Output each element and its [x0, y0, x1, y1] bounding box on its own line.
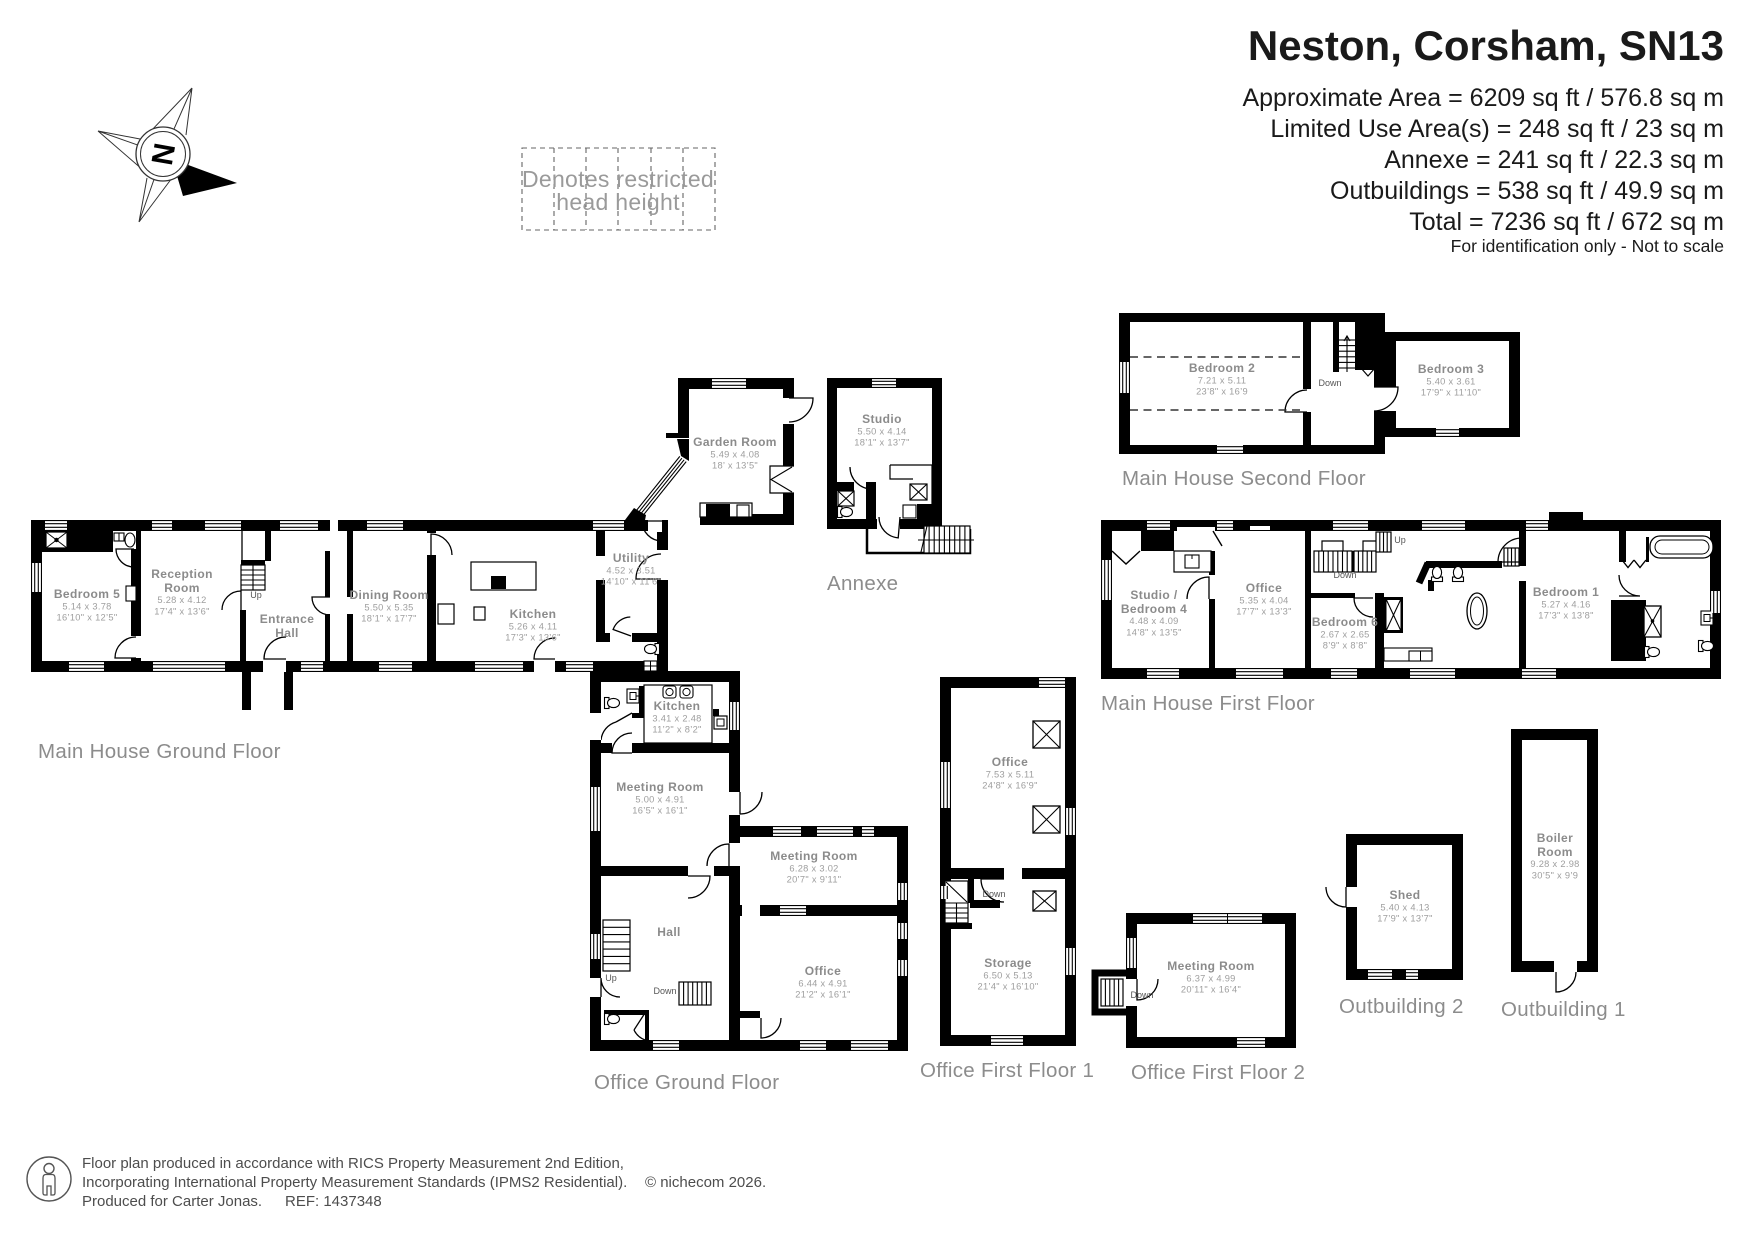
svg-text:Main House Ground Floor: Main House Ground Floor [38, 740, 281, 763]
svg-text:6.28 x 3.02: 6.28 x 3.02 [789, 863, 838, 873]
svg-text:Hall: Hall [657, 925, 681, 939]
svg-text:Studio /: Studio / [1130, 588, 1177, 602]
svg-text:Down: Down [1318, 378, 1341, 388]
svg-text:6.37 x 4.99: 6.37 x 4.99 [1186, 973, 1235, 983]
svg-text:Down: Down [653, 986, 676, 996]
svg-text:Reception: Reception [151, 567, 213, 581]
svg-text:18’ x 13’5": 18’ x 13’5" [712, 461, 758, 471]
svg-text:Room: Room [164, 581, 200, 595]
svg-text:17’4" x 13’6": 17’4" x 13’6" [154, 606, 209, 616]
svg-text:© nichecom 2026.: © nichecom 2026. [645, 1174, 766, 1191]
svg-text:Hall: Hall [275, 626, 299, 640]
svg-text:6.44 x 4.91: 6.44 x 4.91 [798, 978, 847, 988]
svg-text:Bedroom 5: Bedroom 5 [54, 587, 120, 601]
svg-text:7.53 x 5.11: 7.53 x 5.11 [986, 769, 1035, 779]
svg-text:Produced for Carter Jonas.: Produced for Carter Jonas. [82, 1193, 262, 1210]
svg-text:Outbuilding 1: Outbuilding 1 [1501, 998, 1626, 1021]
svg-text:Meeting Room: Meeting Room [616, 780, 703, 794]
svg-text:20’11" x 16’4": 20’11" x 16’4" [1181, 985, 1241, 995]
svg-text:5.00 x 4.91: 5.00 x 4.91 [635, 794, 684, 804]
svg-text:5.50 x 4.14: 5.50 x 4.14 [857, 426, 906, 436]
svg-text:Main House Second Floor: Main House Second Floor [1122, 467, 1366, 490]
svg-text:5.50 x 5.35: 5.50 x 5.35 [364, 602, 413, 612]
svg-text:5.26 x 4.11: 5.26 x 4.11 [509, 621, 558, 631]
svg-text:17’9" x 11’10": 17’9" x 11’10" [1421, 388, 1481, 398]
svg-text:18’1" x 13’7": 18’1" x 13’7" [854, 438, 909, 448]
svg-text:Annexe: Annexe [827, 572, 898, 595]
svg-text:Entrance: Entrance [260, 612, 315, 626]
svg-text:5.35 x 4.04: 5.35 x 4.04 [1239, 595, 1288, 605]
svg-text:Neston, Corsham, SN13: Neston, Corsham, SN13 [1248, 22, 1724, 69]
svg-text:21’4" x 16’10": 21’4" x 16’10" [978, 982, 1039, 992]
svg-text:16’5" x 16’1": 16’5" x 16’1" [632, 806, 687, 816]
svg-text:6.50 x 5.13: 6.50 x 5.13 [983, 970, 1032, 980]
svg-text:Outbuildings = 538 sq ft / 49.: Outbuildings = 538 sq ft / 49.9 sq m [1330, 177, 1724, 205]
svg-text:Bedroom 1: Bedroom 1 [1533, 585, 1599, 599]
svg-text:Storage: Storage [984, 956, 1031, 970]
svg-text:Meeting Room: Meeting Room [1167, 959, 1254, 973]
svg-text:Studio: Studio [862, 412, 902, 426]
svg-text:5.40 x 4.13: 5.40 x 4.13 [1380, 902, 1429, 912]
svg-text:5.28 x 4.12: 5.28 x 4.12 [157, 595, 206, 605]
svg-text:Office First Floor 1: Office First Floor 1 [920, 1059, 1094, 1082]
svg-text:Bedroom 4: Bedroom 4 [1121, 602, 1187, 616]
svg-text:9.28 x 2.98: 9.28 x 2.98 [1530, 859, 1579, 869]
svg-text:23’8" x 16’9: 23’8" x 16’9 [1196, 387, 1248, 397]
svg-text:5.27 x 4.16: 5.27 x 4.16 [1541, 599, 1590, 609]
svg-text:17’3" x 13’8": 17’3" x 13’8" [1538, 611, 1593, 621]
svg-text:Bedroom 2: Bedroom 2 [1189, 361, 1255, 375]
svg-text:3.41 x 2.48: 3.41 x 2.48 [652, 713, 701, 723]
svg-text:Limited Use Area(s) = 248 sq f: Limited Use Area(s) = 248 sq ft / 23 sq … [1270, 115, 1724, 143]
svg-text:Up: Up [605, 973, 617, 983]
svg-text:Garden Room: Garden Room [693, 435, 777, 449]
svg-text:18’1" x 17’7": 18’1" x 17’7" [361, 614, 416, 624]
svg-text:21’2" x 16’1": 21’2" x 16’1" [795, 990, 850, 1000]
svg-text:Outbuilding 2: Outbuilding 2 [1339, 995, 1464, 1018]
svg-text:Boiler: Boiler [1537, 831, 1573, 845]
svg-text:Kitchen: Kitchen [510, 607, 557, 621]
svg-text:5.49 x 4.08: 5.49 x 4.08 [710, 449, 759, 459]
svg-text:Incorporating International Pr: Incorporating International Property Mea… [82, 1174, 627, 1191]
svg-text:Up: Up [1394, 535, 1406, 545]
svg-text:5.14 x 3.78: 5.14 x 3.78 [62, 601, 111, 611]
svg-text:Up: Up [250, 590, 262, 600]
svg-text:Office: Office [1246, 581, 1282, 595]
svg-text:Office Ground Floor: Office Ground Floor [594, 1071, 779, 1094]
svg-text:Bedroom 3: Bedroom 3 [1418, 362, 1484, 376]
svg-text:Room: Room [1537, 845, 1573, 859]
svg-text:7.21 x 5.11: 7.21 x 5.11 [1198, 375, 1247, 385]
svg-text:14’10" x 11’6": 14’10" x 11’6" [601, 577, 661, 587]
svg-text:Main House First Floor: Main House First Floor [1101, 692, 1315, 715]
svg-text:Office: Office [992, 755, 1028, 769]
svg-text:Total = 7236 sq ft / 672 sq m: Total = 7236 sq ft / 672 sq m [1409, 208, 1724, 236]
svg-text:17’7" x 13’3": 17’7" x 13’3" [1236, 607, 1291, 617]
svg-text:4.48 x 4.09: 4.48 x 4.09 [1129, 616, 1178, 626]
svg-text:17’9" x 13’7": 17’9" x 13’7" [1377, 914, 1432, 924]
svg-text:head height: head height [556, 189, 680, 215]
svg-text:Approximate Area = 6209 sq ft: Approximate Area = 6209 sq ft / 576.8 sq… [1242, 84, 1724, 112]
svg-text:20’7" x 9’11": 20’7" x 9’11" [787, 875, 842, 885]
svg-text:Shed: Shed [1390, 888, 1421, 902]
svg-text:Floor plan produced in accorda: Floor plan produced in accordance with R… [82, 1155, 624, 1172]
svg-text:Utility: Utility [613, 551, 649, 565]
svg-text:2.67 x 2.65: 2.67 x 2.65 [1320, 629, 1369, 639]
svg-text:Kitchen: Kitchen [654, 699, 701, 713]
svg-text:30’5" x 9’9: 30’5" x 9’9 [1532, 870, 1578, 880]
svg-text:Down: Down [1333, 570, 1356, 580]
svg-text:Bedroom 6: Bedroom 6 [1312, 615, 1378, 629]
svg-text:Meeting Room: Meeting Room [770, 849, 857, 863]
svg-text:Annexe = 241 sq ft / 22.3 sq m: Annexe = 241 sq ft / 22.3 sq m [1384, 146, 1724, 174]
svg-text:Down: Down [982, 889, 1005, 899]
svg-text:16’10" x 12’5": 16’10" x 12’5" [57, 613, 118, 623]
svg-text:14’8" x 13’5": 14’8" x 13’5" [1126, 627, 1181, 637]
svg-text:Office: Office [805, 964, 841, 978]
svg-text:Dining Room: Dining Room [349, 588, 428, 602]
svg-text:24’8" x 16’9": 24’8" x 16’9" [982, 781, 1037, 791]
svg-text:For identification only - Not: For identification only - Not to scale [1451, 236, 1724, 256]
svg-text:5.40 x 3.61: 5.40 x 3.61 [1426, 376, 1475, 386]
svg-text:8’9" x 8’8": 8’9" x 8’8" [1323, 641, 1368, 651]
svg-text:17’3" x 13’6": 17’3" x 13’6" [505, 633, 560, 643]
svg-text:REF: 1437348: REF: 1437348 [285, 1193, 382, 1210]
svg-text:Office First Floor 2: Office First Floor 2 [1131, 1061, 1305, 1084]
svg-text:Down: Down [1130, 990, 1153, 1000]
svg-text:4.52 x 3.51: 4.52 x 3.51 [606, 565, 655, 575]
svg-text:11’2" x 8’2": 11’2" x 8’2" [652, 725, 701, 735]
